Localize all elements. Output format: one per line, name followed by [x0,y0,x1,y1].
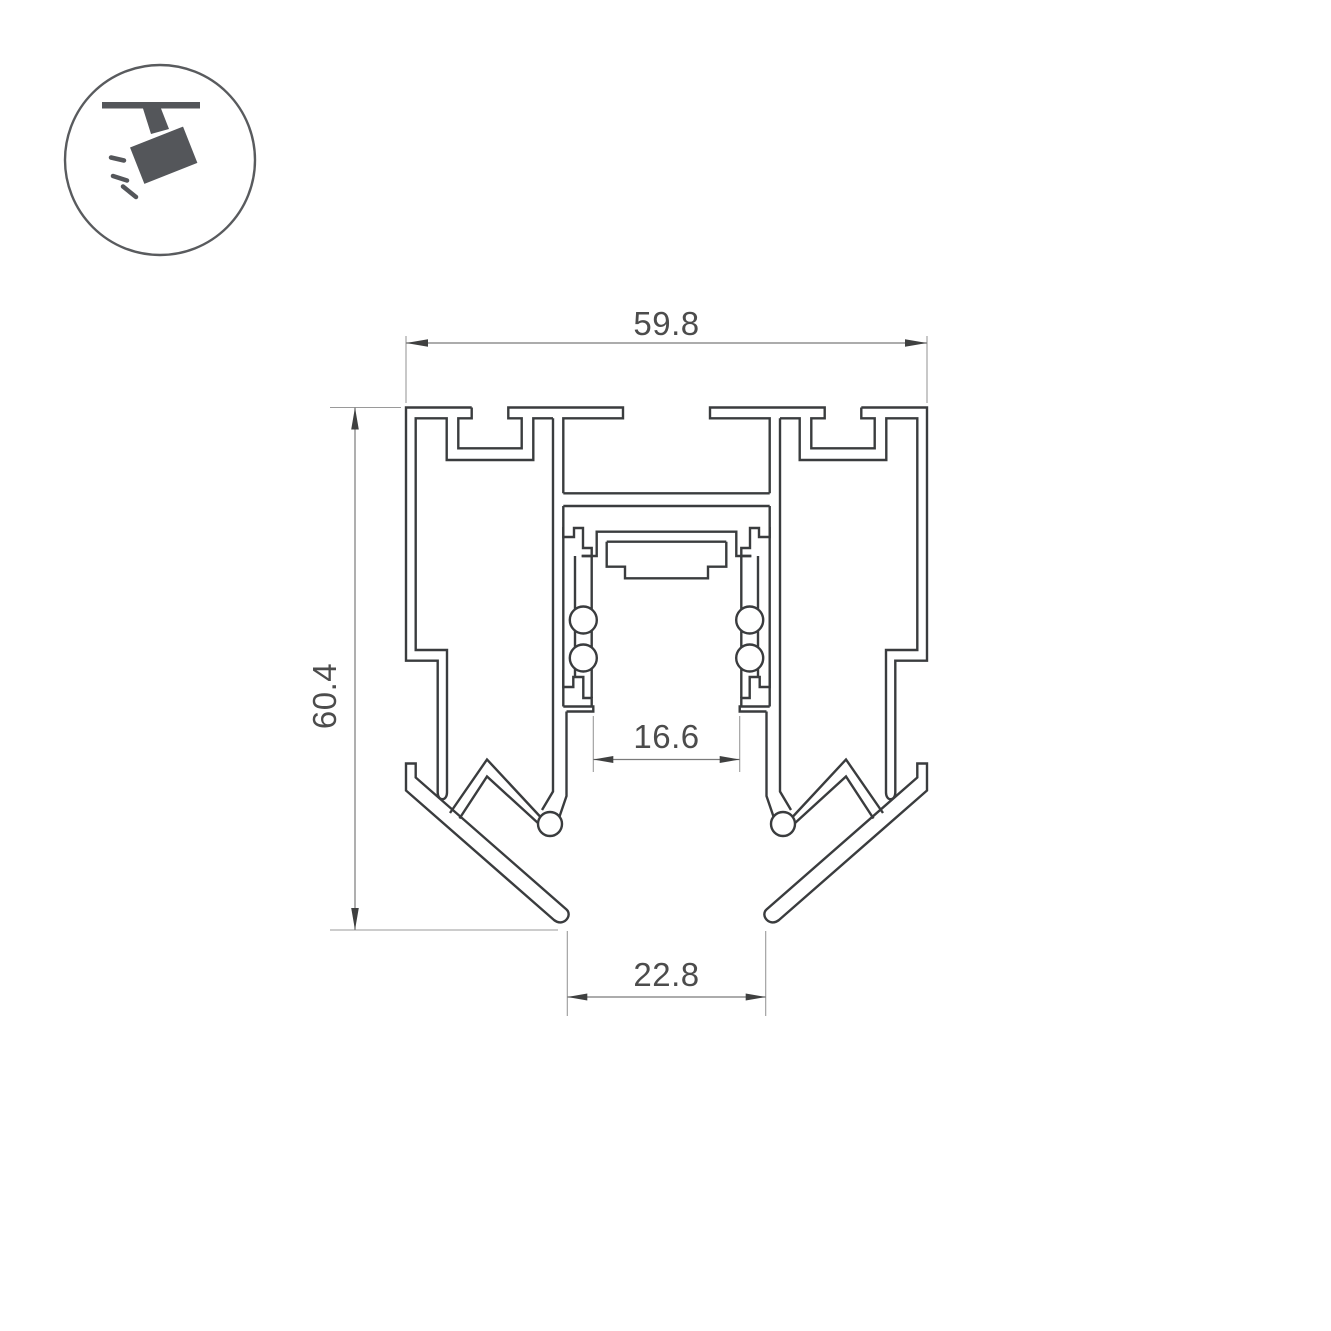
hook-bulb-left [538,812,562,836]
insert-top-step-left [563,527,591,556]
icon-ceiling-bar [102,102,200,109]
dimension-opening-bottom: 22.8 [567,931,765,1016]
icon-light-rays [111,158,136,198]
contact-left-lower [570,645,597,672]
dimension-width-top: 59.8 [406,305,927,403]
strut-right-outer [793,760,884,818]
icon-lamp-body [130,127,197,184]
strut-left-outer [450,760,541,818]
tslot-right [710,408,875,494]
channel-wall-right-lower [767,712,775,819]
insert-bottom-step-right [741,670,769,707]
dim-width-top-value: 59.8 [633,305,699,342]
icon-stem [143,109,169,135]
insert-bottom-step-left [563,670,591,707]
insert-hat-underside [607,542,727,579]
hook-bulb-right [771,812,795,836]
contact-right-lower [736,645,763,672]
insert-top-step-right [741,527,769,556]
dim-opening-bottom-value: 22.8 [633,956,699,993]
blade-left [406,764,569,923]
channel-lip-left [563,707,593,712]
channel-wall-left-lower [559,712,567,819]
profile-outline [406,408,927,923]
dim-height-left-value: 60.4 [306,663,343,729]
dimension-height-left: 60.4 [306,408,558,931]
channel-wall-right-outer [780,418,791,810]
outer-wall-left [406,408,553,800]
channel-lip-right [740,707,770,712]
dim-slot-inner-value: 16.6 [633,718,699,755]
dimension-slot-inner: 16.6 [593,716,739,772]
blade-right [764,764,927,923]
contact-right-upper [736,607,763,634]
profile-cross-section-drawing: 59.8 60.4 16.6 22.8 [0,0,1331,1331]
outer-wall-right [780,408,927,800]
contact-left-upper [570,607,597,634]
conductor-contacts [570,607,763,672]
ceiling-track-spotlight-icon [65,65,255,255]
drawing-page: 59.8 60.4 16.6 22.8 [0,0,1331,1331]
tslot-left [458,408,623,494]
channel-wall-left-outer [542,418,553,810]
